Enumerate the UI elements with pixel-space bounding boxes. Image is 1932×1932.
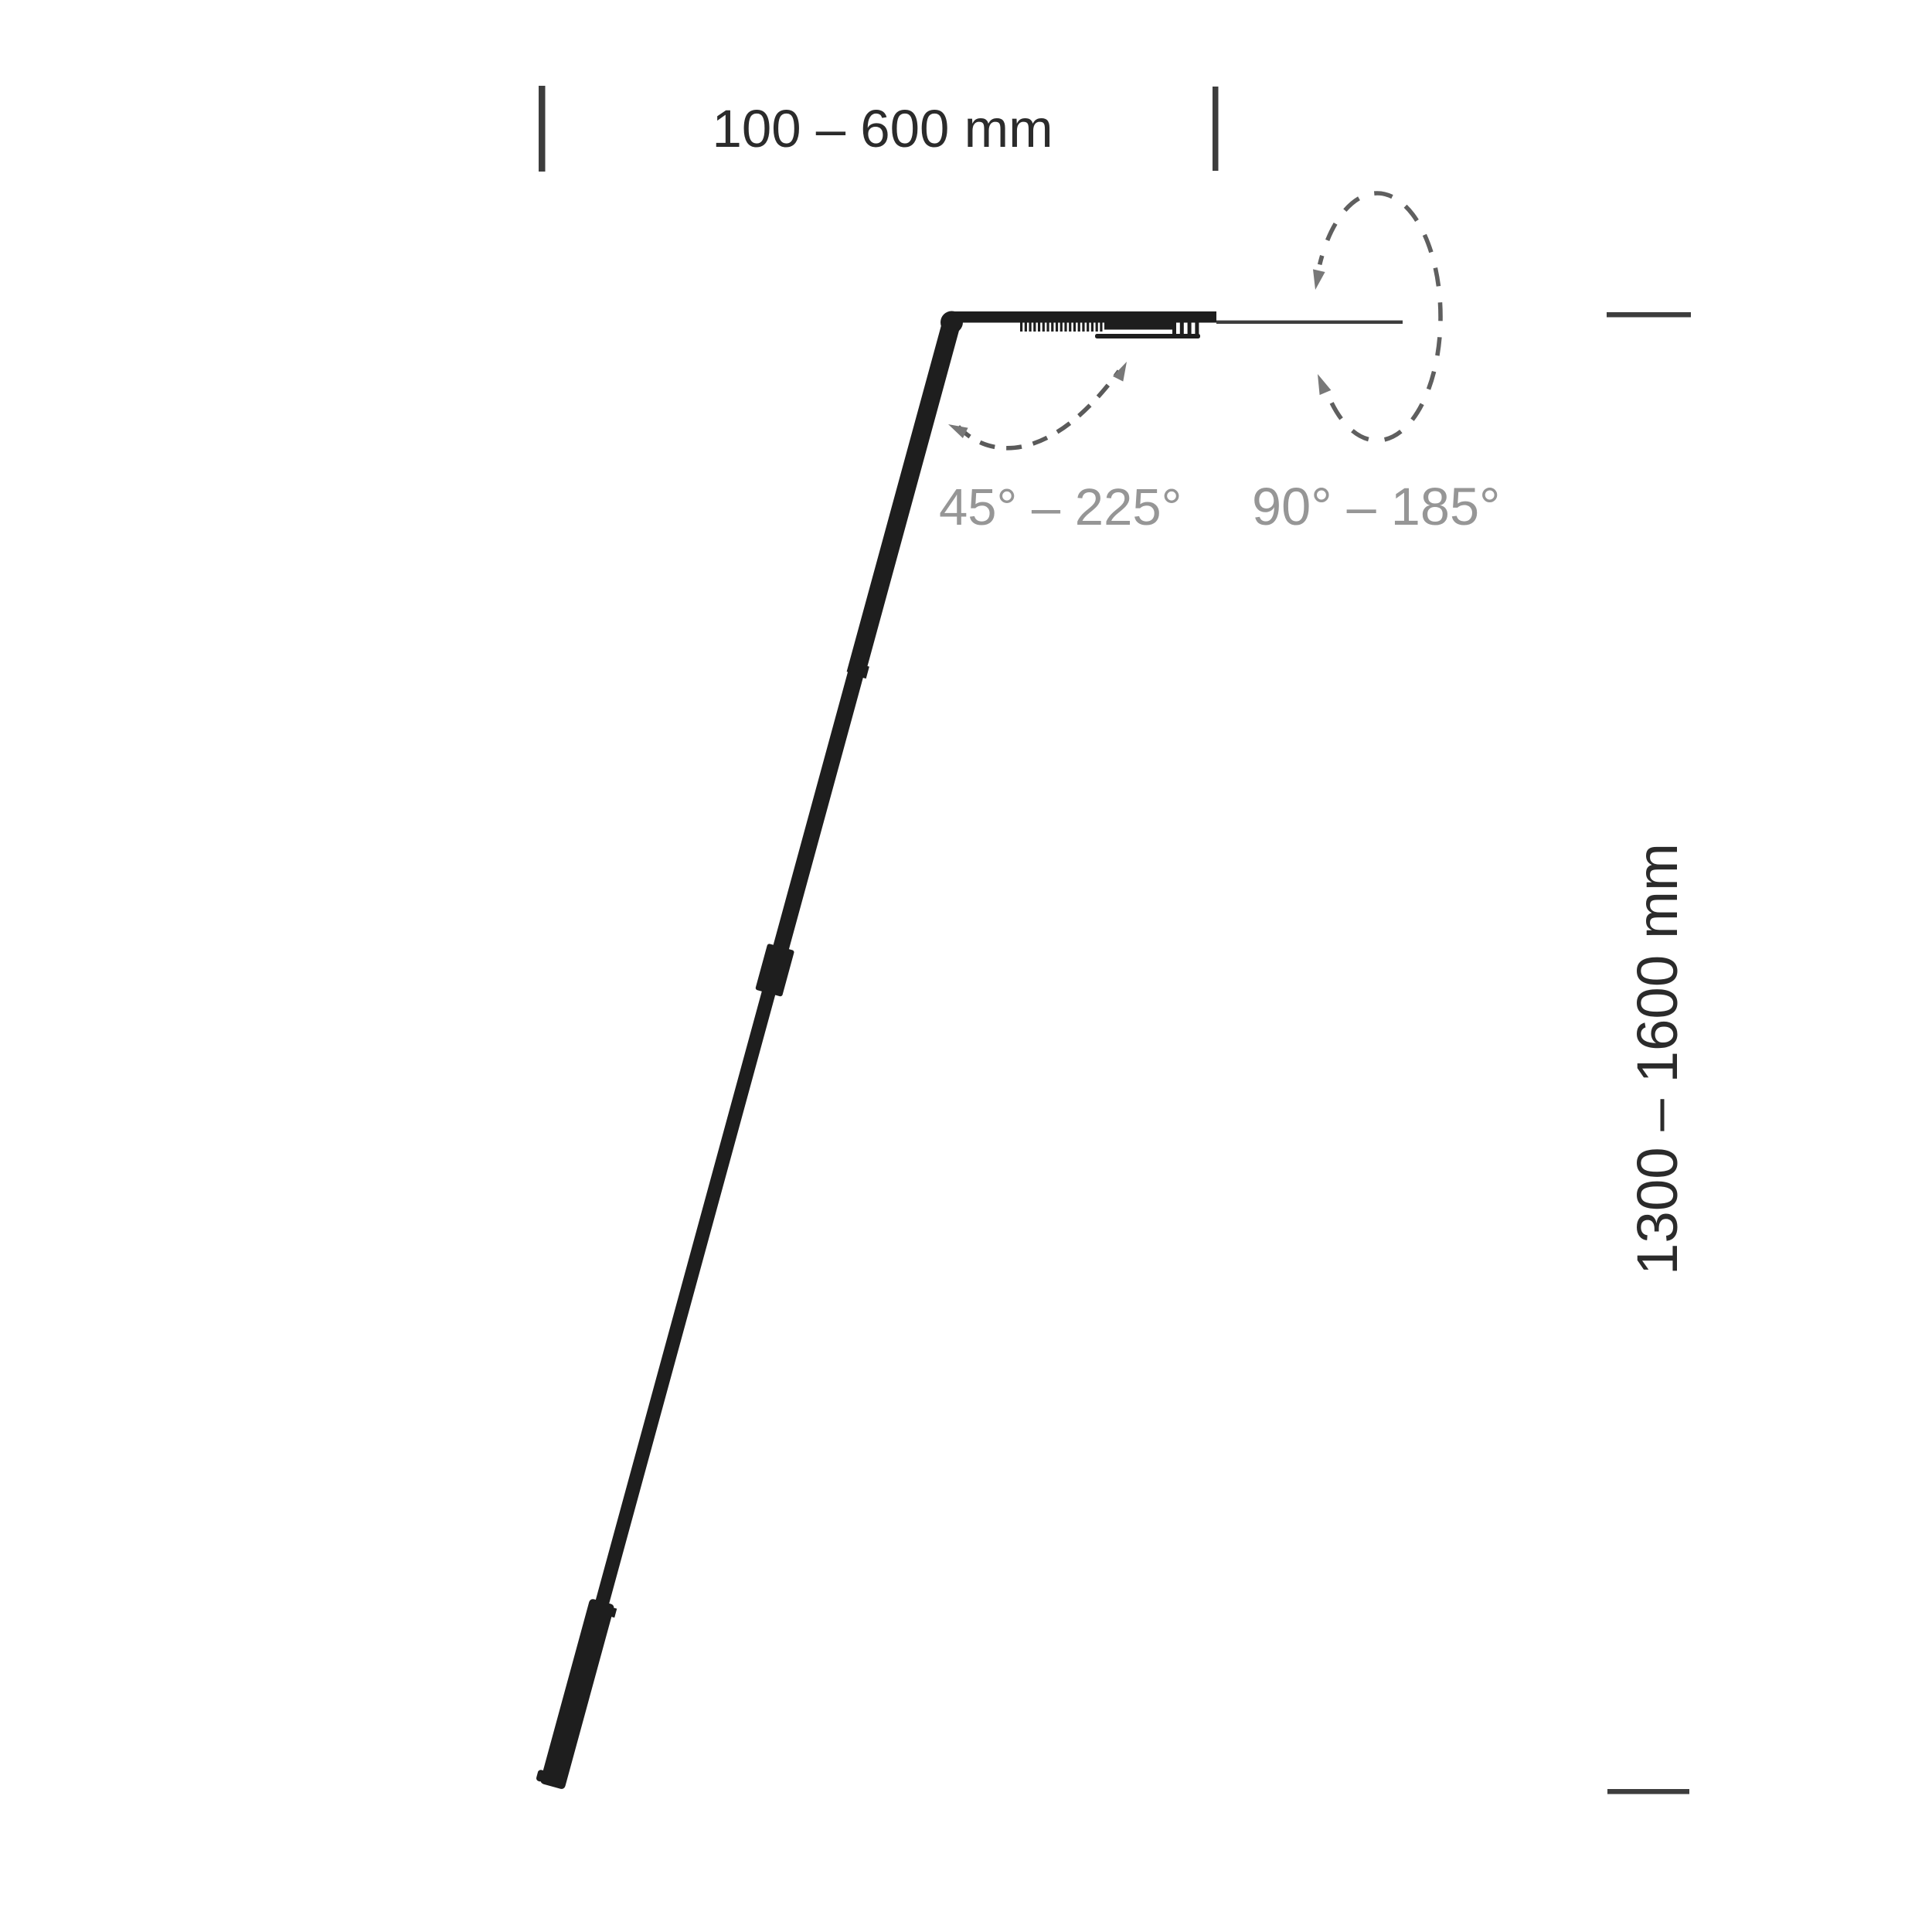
svg-text:1300 – 1600 mm: 1300 – 1600 mm: [1625, 843, 1689, 1275]
svg-text:90° – 185°: 90° – 185°: [1252, 477, 1500, 536]
svg-text:45° – 225°: 45° – 225°: [939, 478, 1182, 536]
svg-text:100 – 600 mm: 100 – 600 mm: [712, 99, 1053, 158]
